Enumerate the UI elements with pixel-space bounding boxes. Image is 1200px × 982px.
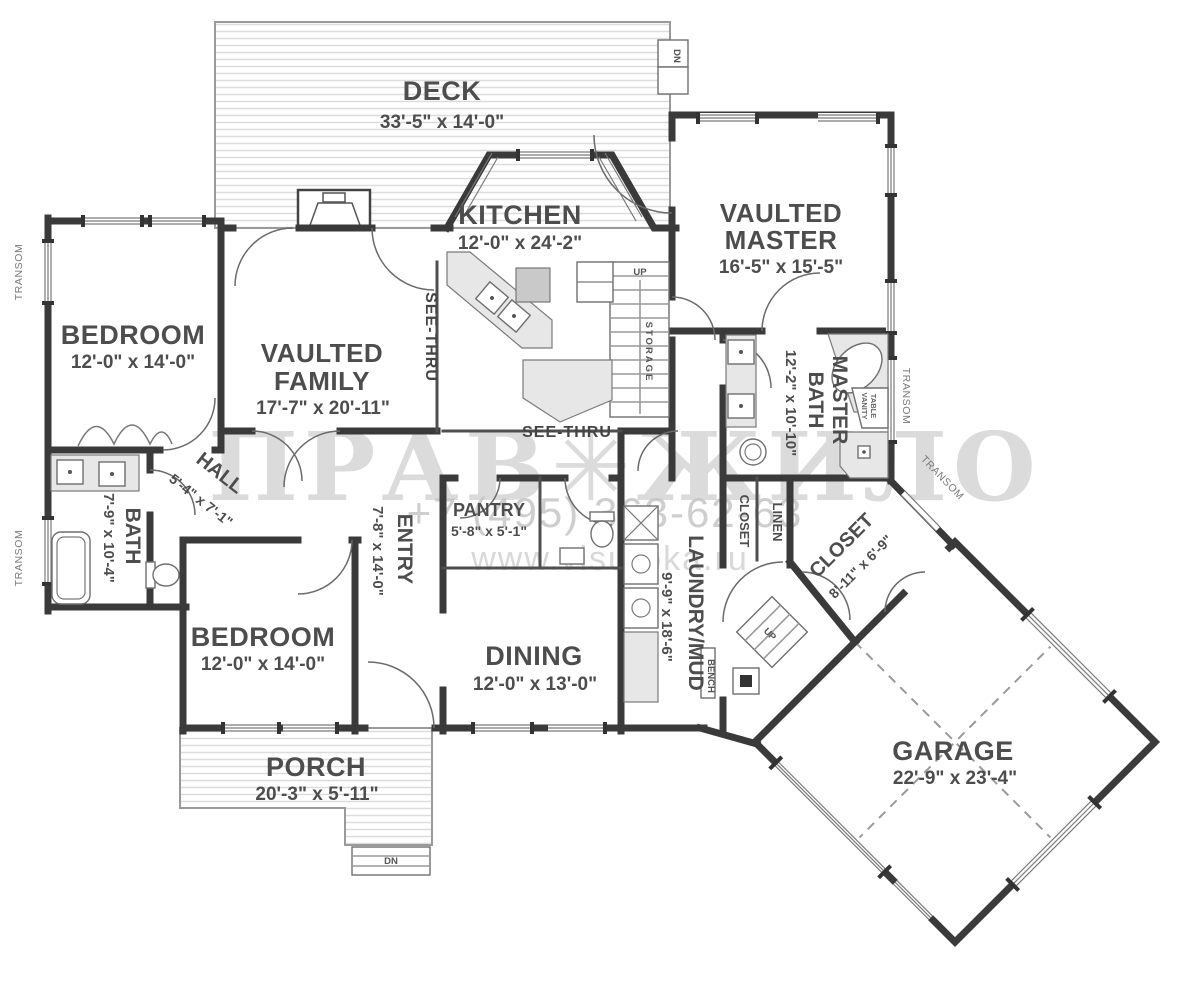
master-bath-label-2: BATH — [804, 372, 827, 429]
bench-label: BENCH — [705, 659, 716, 693]
deck-label: DECK — [403, 76, 482, 106]
family-label-1: VAULTED — [261, 338, 383, 368]
porch-dims: 20'-3" x 5'-11" — [255, 784, 378, 805]
kitchen-fixtures — [447, 252, 613, 422]
dryer — [624, 588, 658, 628]
master-dims: 16'-5" x 15'-5" — [719, 257, 843, 278]
transom-label: TRANSOM — [900, 368, 912, 425]
dining-label: DINING — [485, 641, 583, 671]
dn-label: DN — [671, 49, 682, 63]
deck-dims: 33'-5" x 14'-0" — [380, 112, 504, 133]
master-bath-label-1: MASTER — [828, 356, 851, 445]
vanity-table-label-2: TABLE — [869, 394, 878, 418]
toilet — [740, 439, 766, 465]
washer — [624, 544, 658, 584]
stairs-main — [610, 262, 669, 417]
transom-label: TRANSOM — [13, 530, 25, 587]
laundry-fixtures — [624, 506, 658, 702]
entry-label: ENTRY — [393, 514, 416, 584]
kitchen-dims: 12'-0" x 24'-2" — [458, 233, 582, 254]
closet-rod — [78, 425, 172, 446]
bath-dims: 7'-9" x 10'-4" — [100, 493, 117, 583]
laundry-dims: 9'-9" x 18'-6" — [658, 572, 675, 662]
bedroom1-label: BEDROOM — [61, 320, 206, 350]
sink — [560, 548, 584, 564]
vanity-table-label-1: VANITY — [860, 393, 869, 420]
garage-dims: 22'-9" x 23'-4" — [893, 768, 1017, 789]
bath-label: BATH — [121, 508, 144, 565]
family-dims: 17'-7" x 20'-11" — [256, 398, 390, 419]
master-label-1: VAULTED — [720, 198, 842, 228]
pantry-dims: 5'-8" x 5'-1" — [451, 523, 527, 539]
bedroom2-dims: 12'-0" x 14'-0" — [201, 654, 325, 675]
toilet — [590, 512, 614, 521]
deck-step — [658, 67, 688, 94]
floor-plan: ПРАВ✳ЖИЛО +7 (495) 363-62-63 www.visurok… — [0, 0, 1200, 982]
see-thru-label-horizontal: SEE-THRU — [522, 424, 612, 441]
laundry-label: LAUNDRY/MUD — [684, 535, 707, 691]
porch-label: PORCH — [266, 752, 366, 782]
kitchen-range — [516, 268, 550, 302]
kitchen-label: KITCHEN — [458, 200, 582, 230]
family-label-2: FAMILY — [274, 366, 370, 396]
see-thru-label-vertical: SEE-THRU — [422, 292, 439, 382]
dn-label: DN — [384, 856, 398, 867]
stairs-garage: UP — [737, 597, 808, 668]
storage-label: STORAGE — [643, 322, 654, 383]
linen-label: LINEN — [770, 503, 785, 542]
master-label-2: MASTER — [725, 225, 838, 255]
laundry-counter — [624, 632, 658, 702]
closet-label: CLOSET — [737, 495, 752, 548]
fireplace — [298, 190, 370, 230]
up-label: UP — [633, 267, 647, 278]
master-bath-dims: 12'-2" x 10'-10" — [782, 350, 799, 456]
entry-dims: 7'-8" x 14'-0" — [369, 506, 386, 596]
transom-label: TRANSOM — [13, 244, 25, 301]
bedroom2-label: BEDROOM — [191, 622, 336, 652]
bedroom1-dims: 12'-0" x 14'-0" — [71, 352, 195, 373]
dining-dims: 12'-0" x 13'-0" — [473, 674, 597, 695]
garage-label: GARAGE — [892, 736, 1014, 766]
pantry-label: PANTRY — [453, 500, 525, 520]
